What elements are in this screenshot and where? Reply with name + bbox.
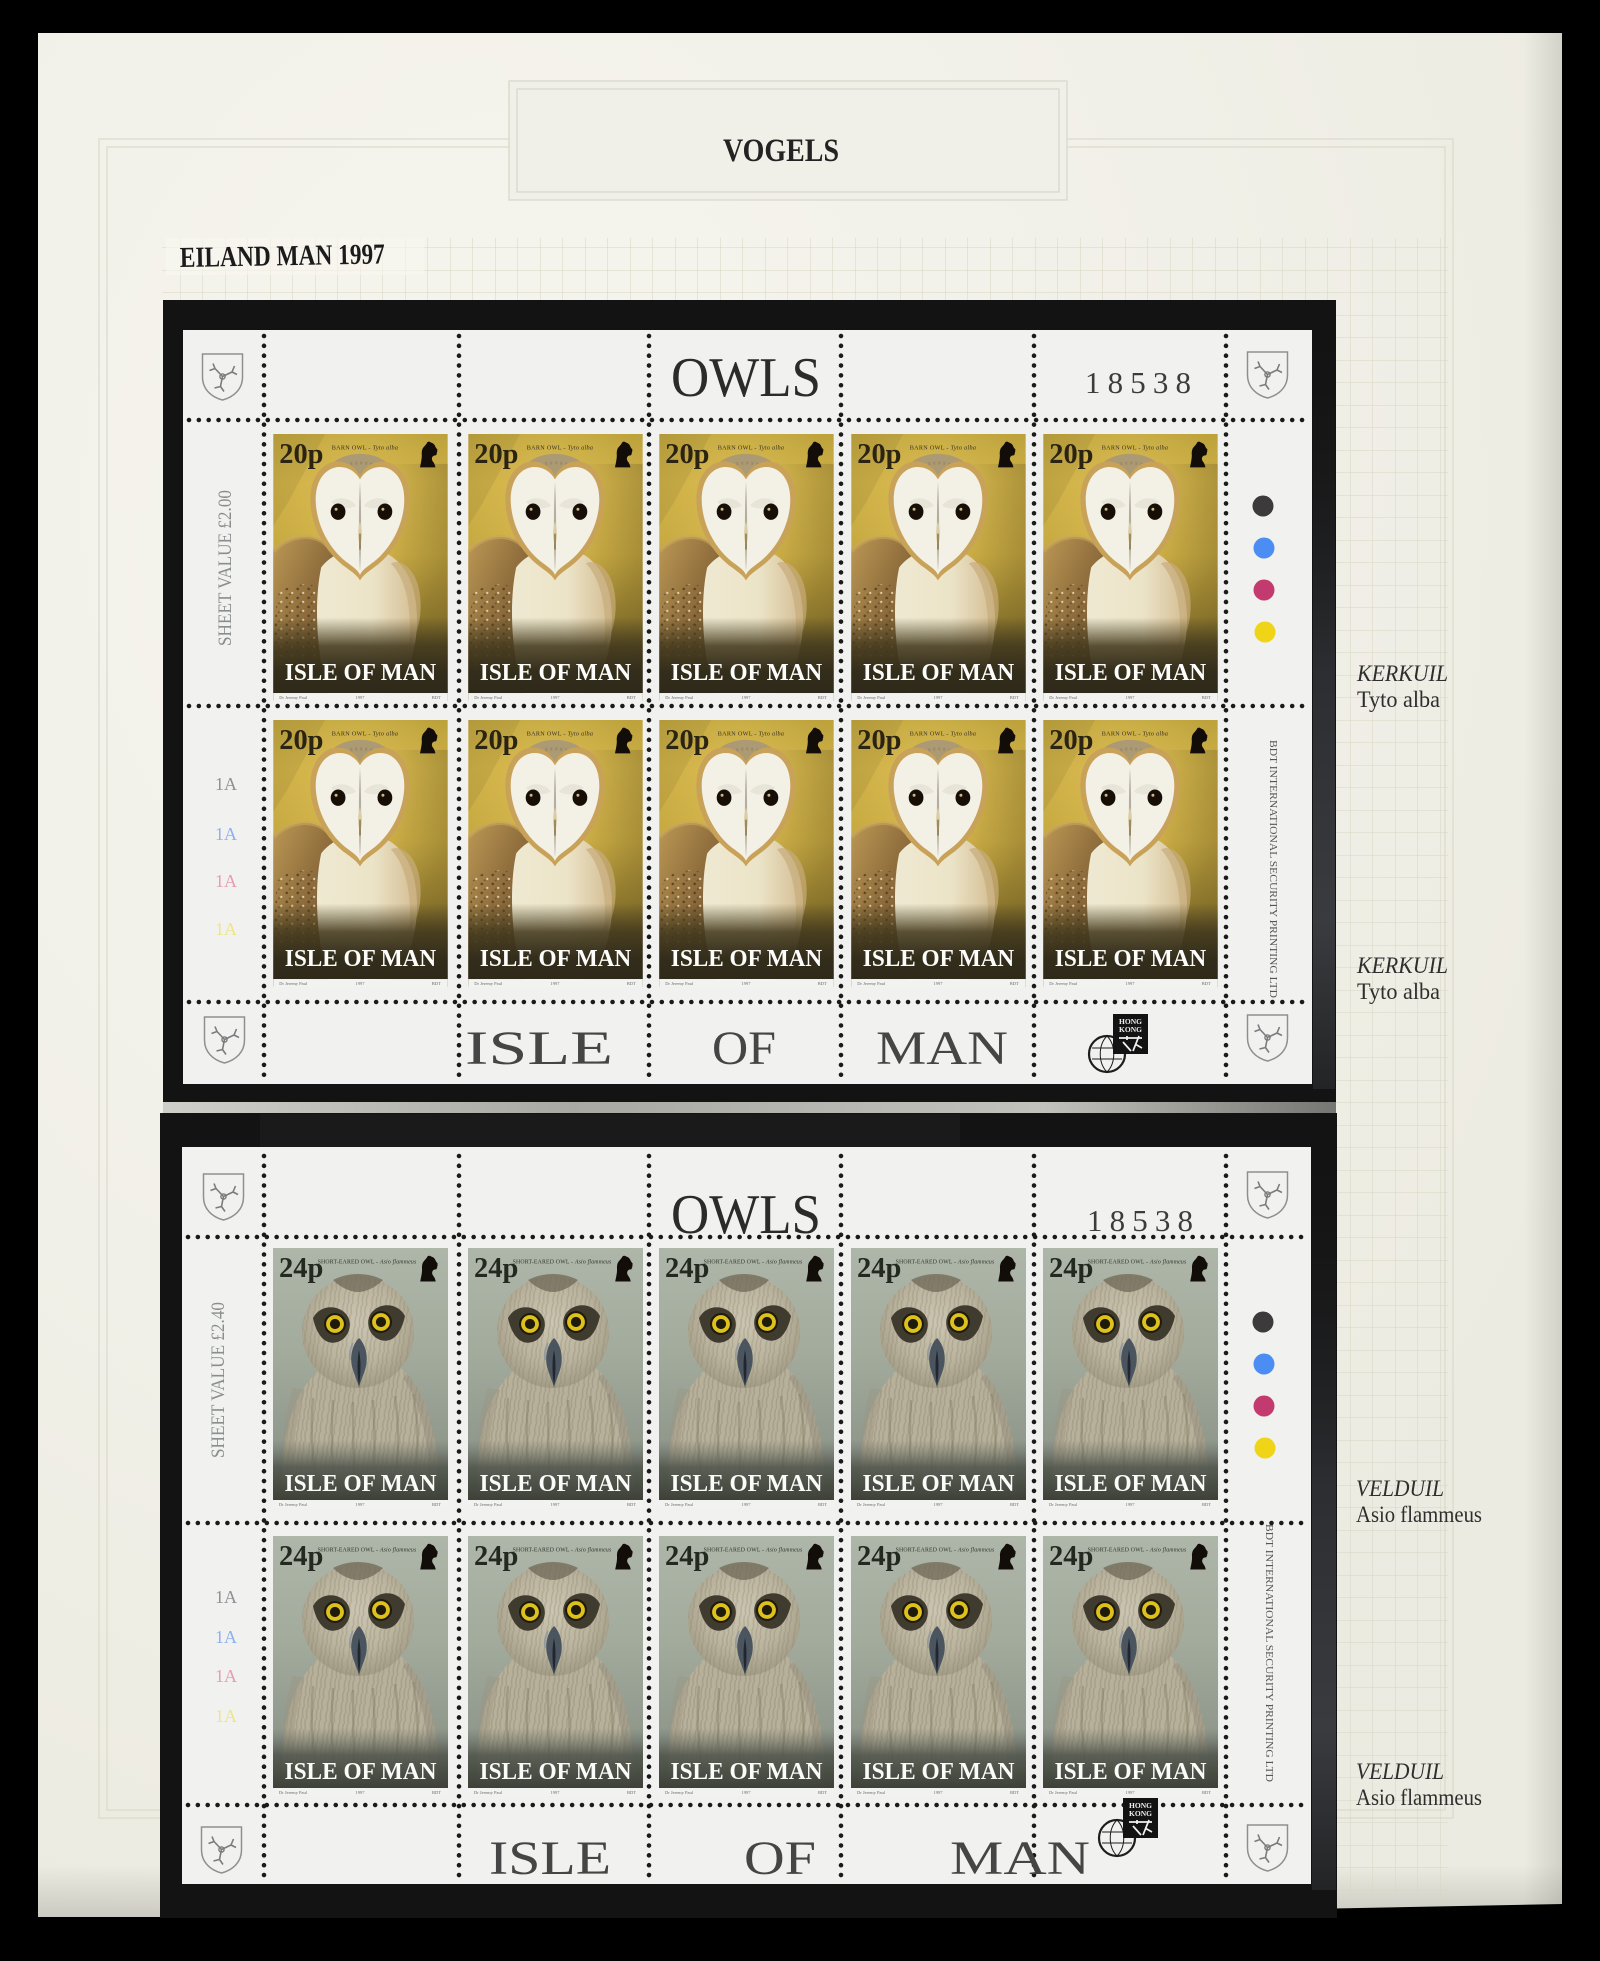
svg-text:VELDUIL: VELDUIL — [1356, 1759, 1444, 1784]
svg-text:OWLS: OWLS — [671, 347, 821, 409]
svg-text:KERKUIL: KERKUIL — [1356, 661, 1448, 686]
svg-text:1A: 1A — [215, 871, 237, 891]
svg-text:1A: 1A — [215, 1666, 237, 1686]
svg-text:BDT INTERNATIONAL SECURITY PRI: BDT INTERNATIONAL SECURITY PRINTING LTD — [1263, 1524, 1274, 1782]
svg-text:VOGELS: VOGELS — [723, 133, 839, 169]
svg-text:SHEET VALUE £2.00: SHEET VALUE £2.00 — [215, 490, 236, 646]
svg-text:Asio flammeus: Asio flammeus — [1356, 1502, 1482, 1527]
svg-text:OWLS: OWLS — [671, 1184, 821, 1246]
svg-text:1A: 1A — [215, 824, 237, 844]
svg-text:Asio flammeus: Asio flammeus — [1356, 1785, 1482, 1810]
svg-text:OF: OF — [712, 1022, 776, 1075]
svg-text:Tyto alba: Tyto alba — [1357, 979, 1440, 1004]
svg-text:1A: 1A — [215, 1587, 237, 1607]
svg-text:ISLE: ISLE — [489, 1832, 611, 1885]
svg-text:MAN: MAN — [876, 1022, 1008, 1075]
svg-text:1A: 1A — [215, 774, 237, 794]
svg-text:KERKUIL: KERKUIL — [1356, 953, 1448, 978]
svg-text:SHEET VALUE £2.40: SHEET VALUE £2.40 — [208, 1302, 229, 1458]
svg-text:VELDUIL: VELDUIL — [1356, 1476, 1444, 1501]
svg-text:EILAND MAN 1997: EILAND MAN 1997 — [180, 238, 386, 274]
svg-text:1A: 1A — [215, 1706, 237, 1726]
svg-text:Tyto alba: Tyto alba — [1357, 687, 1440, 712]
svg-text:OF: OF — [744, 1832, 816, 1885]
svg-text:MAN: MAN — [950, 1832, 1090, 1885]
svg-text:ISLE: ISLE — [465, 1022, 613, 1075]
svg-text:BDT INTERNATIONAL SECURITY PRI: BDT INTERNATIONAL SECURITY PRINTING LTD — [1267, 740, 1278, 998]
svg-text:1A: 1A — [215, 919, 237, 939]
svg-text:1A: 1A — [215, 1627, 237, 1647]
